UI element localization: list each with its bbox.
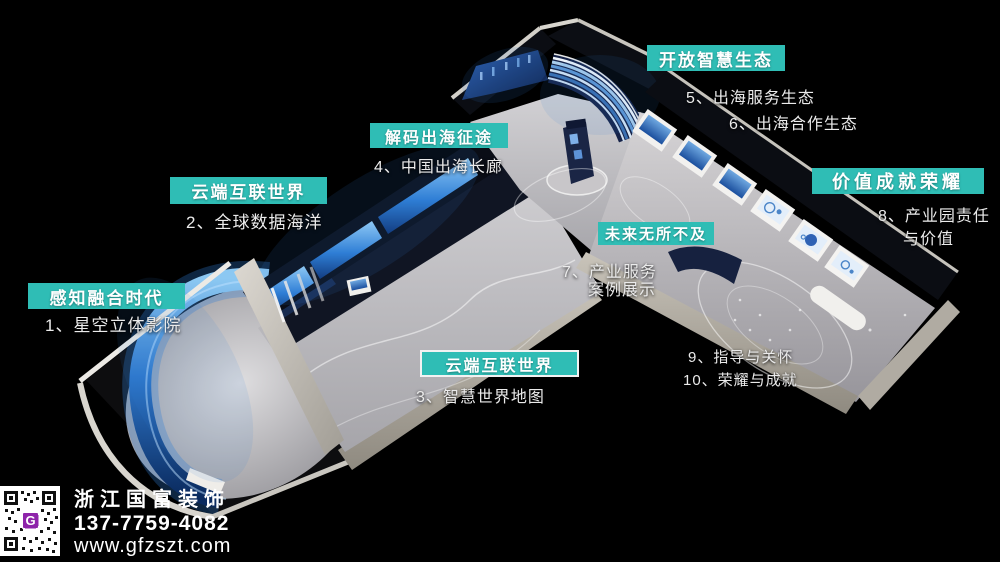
zone-item-world-map: 3、智慧世界地图 xyxy=(416,383,545,407)
zone-tag-perception-era: 感知融合时代 xyxy=(28,283,185,309)
zone-item-coop-ecology: 6、出海合作生态 xyxy=(729,110,858,134)
qr-code: G xyxy=(0,486,60,556)
company-name: 浙江国富装饰 xyxy=(74,488,231,512)
zone-item-case-display: 案例展示 xyxy=(588,276,656,300)
zone-tag-decode-voyage: 解码出海征途 xyxy=(370,123,508,148)
zone-item-glory-achievement: 10、荣耀与成就 xyxy=(683,369,798,390)
zone-tag-cloud-world-2: 云端互联世界 xyxy=(420,350,579,377)
company-branding: G 浙江国富装饰 137-7759-4082 www.gfzszt.com xyxy=(0,486,320,562)
zone-item-star-cinema: 1、星空立体影院 xyxy=(45,311,181,336)
hall-3d-render xyxy=(0,0,1000,562)
phone-number: 137-7759-4082 xyxy=(74,512,231,535)
exhibition-hall-render-page: 感知融合时代 1、星空立体影院 云端互联世界 2、全球数据海洋 解码出海征途 4… xyxy=(0,0,1000,562)
zone-item-service-ecology: 5、出海服务生态 xyxy=(686,84,815,108)
zone-tag-cloud-world-1: 云端互联世界 xyxy=(170,177,327,204)
zone-item-park-value: 与价值 xyxy=(903,225,954,249)
zone-item-park-duty: 8、产业园责任 xyxy=(878,202,990,226)
zone-tag-open-ecology: 开放智慧生态 xyxy=(647,45,785,71)
website-url: www.gfzszt.com xyxy=(74,535,231,558)
zone-item-guidance-care: 9、指导与关怀 xyxy=(688,346,793,367)
brand-logo-letter: G xyxy=(25,513,35,528)
zone-tag-future-unlimited: 未来无所不及 xyxy=(598,222,714,245)
zone-tag-value-glory: 价值成就荣耀 xyxy=(812,168,984,194)
zone-item-china-corridor: 4、中国出海长廊 xyxy=(374,153,503,177)
zone-item-data-ocean: 2、全球数据海洋 xyxy=(186,208,322,233)
